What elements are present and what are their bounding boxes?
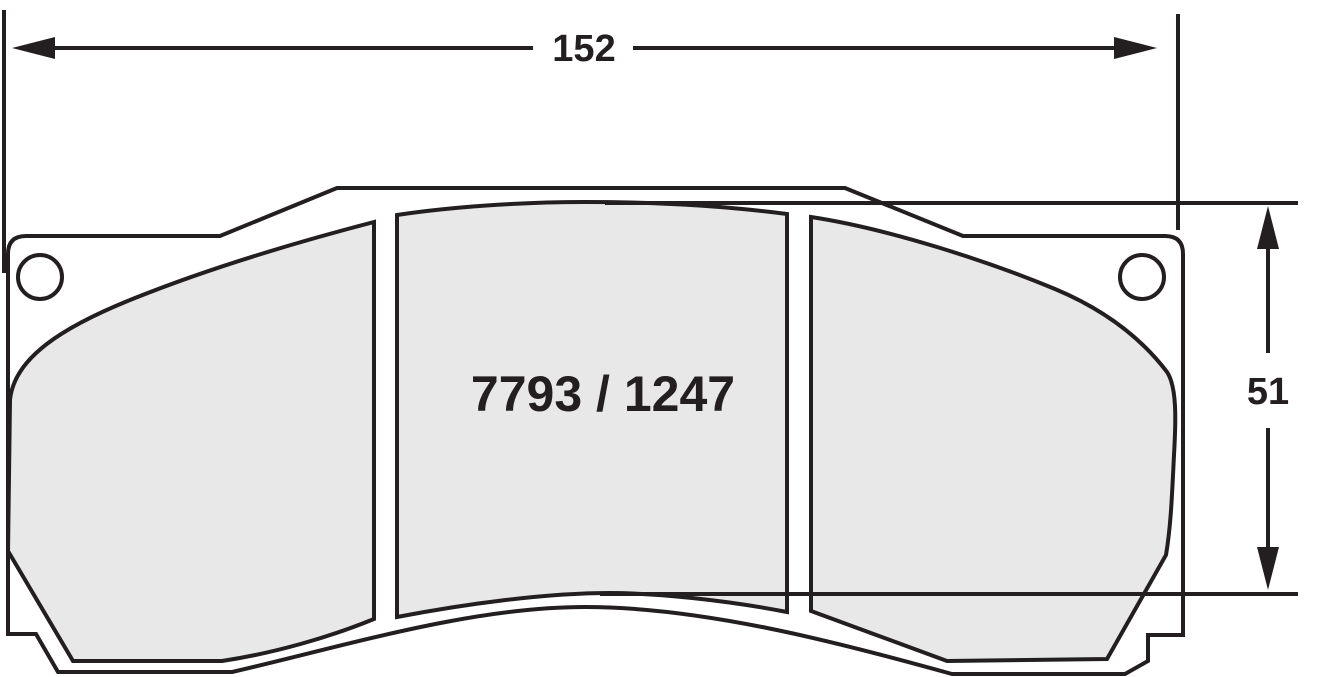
arrowhead-up-icon — [1257, 206, 1279, 249]
arrowhead-down-icon — [1257, 547, 1279, 590]
brake-pad-technical-drawing: 152 51 7793 / 1247 — [0, 0, 1317, 677]
drawing-root: 152 51 7793 / 1247 — [4, 10, 1298, 674]
width-dimension-label: 152 — [552, 28, 615, 70]
arrowhead-right-icon — [1114, 37, 1157, 59]
mounting-hole-left — [18, 255, 62, 299]
arrowhead-left-icon — [12, 37, 55, 59]
mounting-hole-right — [1120, 255, 1164, 299]
part-number-label: 7793 / 1247 — [471, 366, 735, 422]
height-dimension-label: 51 — [1247, 371, 1289, 413]
